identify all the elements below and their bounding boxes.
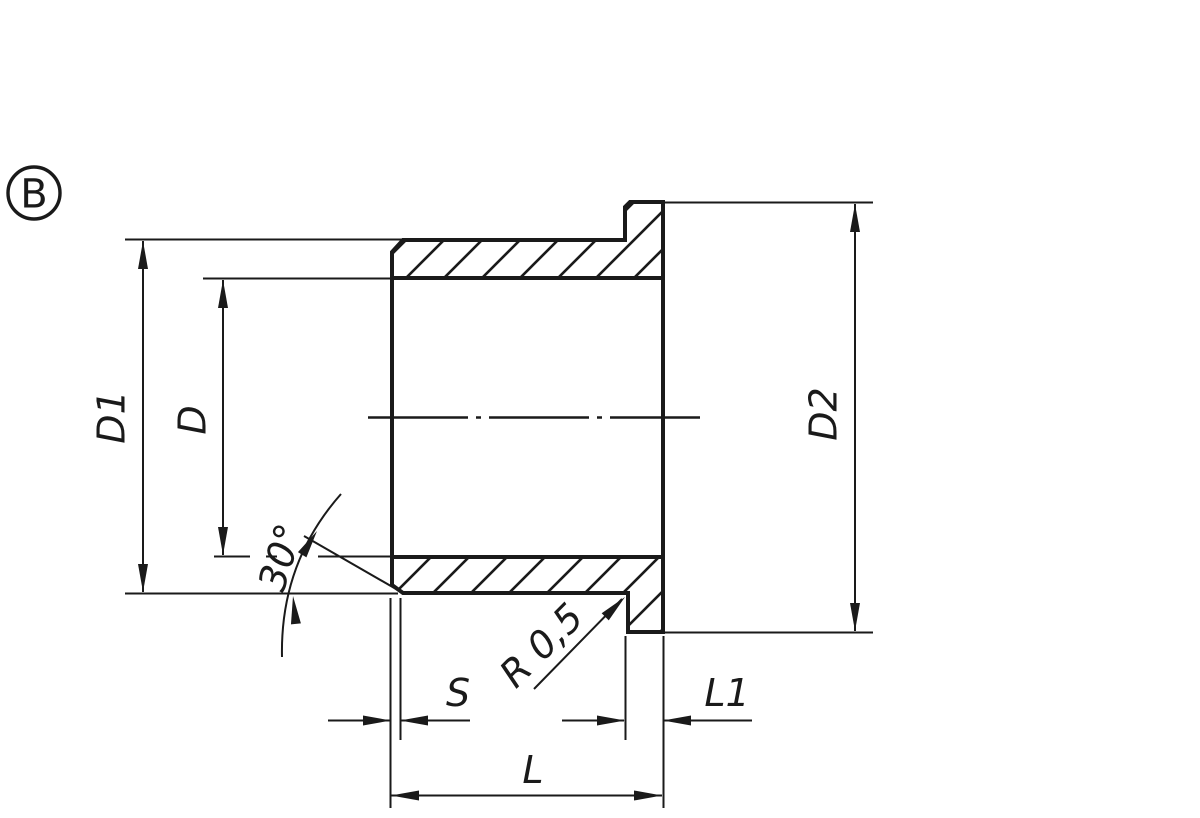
flanged-bushing-section-drawing: B D1 D D2 — [0, 0, 1200, 818]
bushing-section — [368, 202, 700, 632]
l1-label: L1 — [704, 671, 749, 715]
l-label: L — [522, 748, 543, 792]
d2-label: D2 — [802, 387, 846, 440]
view-marker-label: B — [20, 171, 47, 217]
d-label: D — [171, 405, 215, 434]
s-label: S — [446, 671, 470, 715]
d1-label: D1 — [90, 390, 134, 443]
technical-drawing-page: B D1 D D2 — [0, 0, 1200, 818]
